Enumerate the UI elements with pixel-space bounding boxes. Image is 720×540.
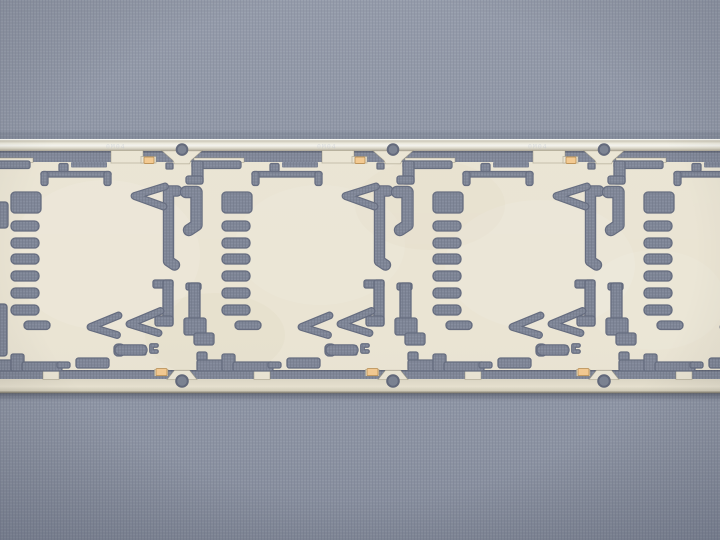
scene-svg: 0M040M040M040M04 (0, 0, 720, 540)
leadframe-strip-photo: 0M040M040M040M04 (0, 0, 720, 540)
